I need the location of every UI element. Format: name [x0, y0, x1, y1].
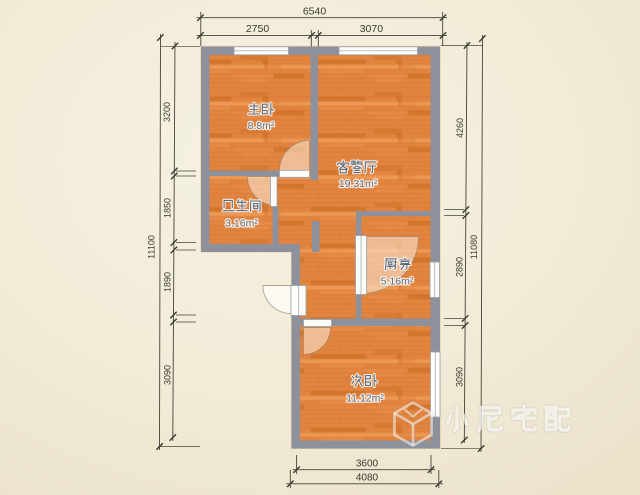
svg-text:11.12m²: 11.12m² [346, 393, 384, 405]
svg-text:2750: 2750 [246, 23, 270, 35]
svg-text:19.31m²: 19.31m² [339, 178, 378, 190]
svg-text:4080: 4080 [356, 473, 379, 484]
svg-text:1890: 1890 [163, 272, 173, 292]
svg-text:1850: 1850 [163, 198, 173, 218]
svg-text:3600: 3600 [356, 459, 379, 470]
svg-text:3090: 3090 [163, 365, 173, 385]
svg-text:2890: 2890 [455, 257, 465, 277]
svg-text:3.16m²: 3.16m² [225, 218, 258, 230]
svg-text:6540: 6540 [303, 6, 327, 18]
svg-text:5.16m²: 5.16m² [381, 276, 414, 288]
svg-text:11080: 11080 [469, 235, 479, 259]
svg-text:3070: 3070 [360, 23, 384, 35]
svg-text:8.8m²: 8.8m² [248, 120, 275, 132]
svg-text:4260: 4260 [455, 118, 465, 138]
svg-text:11100: 11100 [147, 235, 157, 259]
svg-text:3090: 3090 [454, 367, 464, 387]
svg-text:3200: 3200 [162, 102, 172, 122]
